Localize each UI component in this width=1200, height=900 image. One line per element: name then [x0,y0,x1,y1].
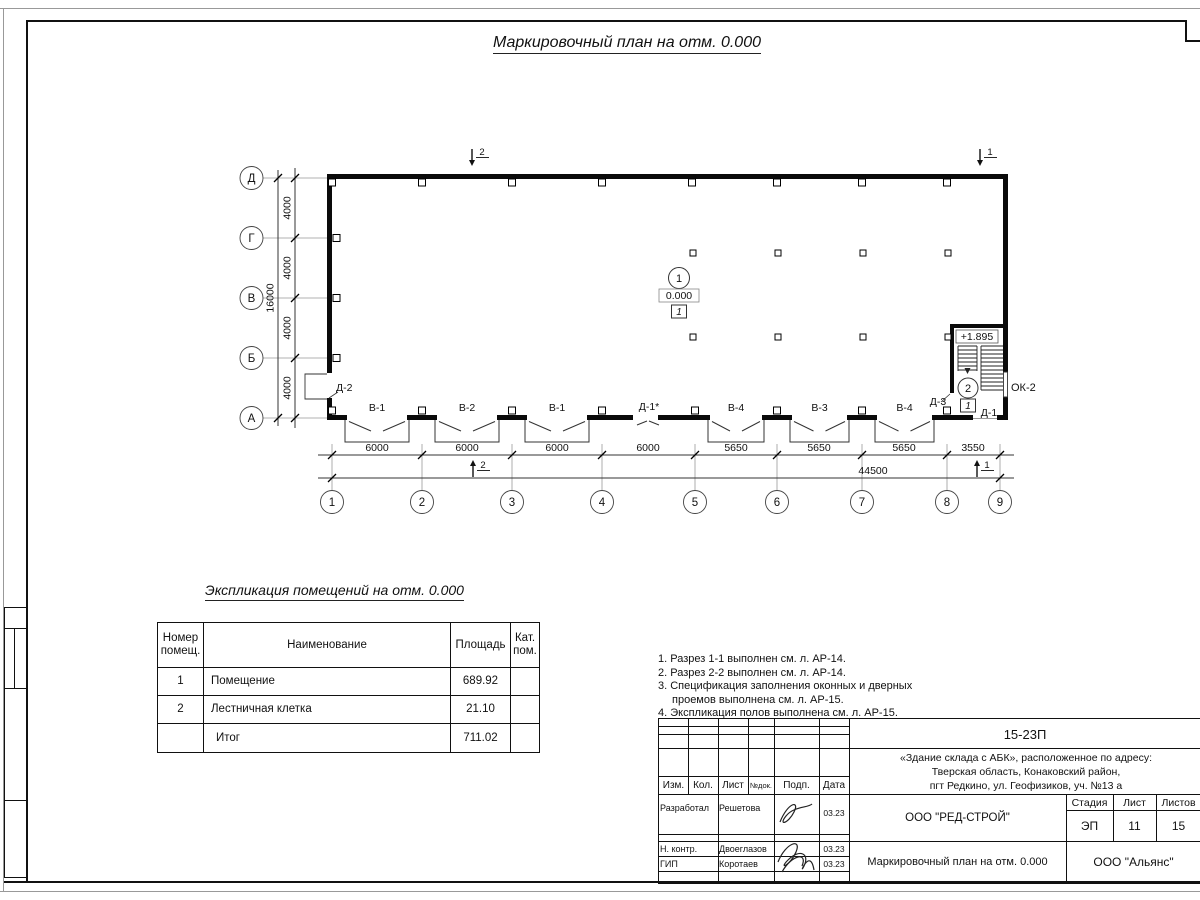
room1-number: 1 [676,273,682,285]
stair-elevation: +1.895 [961,331,994,343]
stair-direction-arrow [965,368,971,374]
dim-4000: 4000 [282,376,294,400]
tb-role-developer: Разработал [660,801,717,814]
signatures [774,794,819,883]
windows [345,420,934,442]
tb-col-izm: Изм. [659,778,688,793]
room1-floor-type: 1 [676,307,682,318]
dim-4000: 4000 [282,256,294,280]
note-item: 2. Разрез 2-2 выполнен см. л. АР-14. [658,667,936,681]
section-2-bottom: 2 [480,460,485,471]
dim-6000: 6000 [455,442,479,454]
drawing-sheet: Маркировочный план на отм. 0.000 6000 60… [0,0,1200,900]
room2-floor-type: 1 [965,401,971,412]
axis-8: 8 [944,497,950,509]
axis-6: 6 [774,497,780,509]
signature-ncontrol-gip [778,844,814,872]
tb-doc-title: Маркировочный план на отм. 0.000 [849,841,1066,883]
axis-b: Б [248,353,256,365]
schedule-title: Экспликация помещений на отм. 0.000 [205,582,464,598]
schedule-header-area: Площадь [451,623,511,668]
axis-9: 9 [997,497,1003,509]
tb-name-ncontrol: Двоеглазов [719,842,773,855]
tb-sheet-value: 11 [1113,811,1156,840]
schedule-cell-cat [511,668,539,696]
schedule-cell-num [158,724,204,752]
dimension-texts: 6000 6000 6000 6000 5650 5650 5650 3550 … [265,196,985,477]
tb-object-line2: Тверская область, Конаковский район, [932,765,1121,779]
schedule-header-cat: Кат. пом. [511,623,539,668]
tb-name-gip: Коротаев [719,857,773,870]
window-label: В-2 [459,402,476,414]
dimension-ticks [274,174,1004,482]
schedule-cell-num: 1 [158,668,204,696]
dim-4000: 4000 [282,196,294,220]
axis-g: Г [248,233,255,245]
axis-4: 4 [599,497,606,509]
axis-3: 3 [509,497,515,509]
dim-6000: 6000 [545,442,569,454]
tb-role-gip: ГИП [660,857,717,870]
dim-5650: 5650 [807,442,831,454]
schedule-title-text: Экспликация помещений на отм. 0.000 [205,582,464,601]
schedule-cell-total-area: 711.02 [451,724,511,752]
tb-col-ndok: №док. [748,778,774,793]
tb-object-line3: пгт Редкино, ул. Геофизиков, уч. №13 а [930,779,1123,793]
tb-role-ncontrol: Н. контр. [660,842,717,855]
axis-labels-left: Д Г В Б А [248,173,256,425]
axis-d: Д [248,173,256,185]
signature-developer [780,804,812,822]
window-label: В-1 [369,402,386,414]
door-label-d3: Д-3 [930,396,947,408]
tb-company: ООО "Альянс" [1066,841,1200,883]
schedule-cell-cat [511,724,539,752]
door-label-d1: Д-1 [981,407,998,419]
schedule-header-num: Номер помещ. [158,623,204,668]
dim-4000: 4000 [282,316,294,340]
window-label: В-4 [728,402,745,414]
tb-col-list: Лист [718,778,748,793]
axis-7: 7 [859,497,865,509]
axis-1: 1 [329,497,335,509]
dim-total-h: 44500 [858,465,887,477]
window-label-ok2: ОК-2 [1011,382,1036,394]
axis-5: 5 [692,497,698,509]
tb-col-data: Дата [819,778,849,793]
schedule-cell-name: Лестничная клетка [204,696,451,724]
room1-marker: 1 0.000 1 [659,268,699,319]
tb-org: ООО "РЕД-СТРОЙ" [849,794,1066,841]
door-label-d1star: Д-1* [639,401,660,413]
section-2-top: 2 [479,147,484,158]
tb-date-ncontrol: 03.23 [819,843,849,855]
dim-6000: 6000 [365,442,389,454]
tb-sheets-value: 15 [1156,811,1200,840]
tb-stage-value: ЭП [1066,811,1113,840]
schedule-cell-name: Помещение [204,668,451,696]
dim-total-v: 16000 [265,283,277,312]
window-label: В-3 [811,402,828,414]
dim-5650: 5650 [724,442,748,454]
door-label-d2: Д-2 [336,382,353,394]
room2-number: 2 [965,383,971,395]
room1-elevation: 0.000 [666,290,692,302]
tb-date-developer: 03.23 [819,807,849,819]
window-label: В-4 [896,402,913,414]
section-1-bottom: 1 [984,460,989,471]
schedule-cell-area: 21.10 [451,696,511,724]
notes-list: 1. Разрез 1-1 выполнен см. л. АР-14. 2. … [658,653,936,721]
columns [329,179,952,414]
dim-3550: 3550 [961,442,985,454]
window-label: В-1 [549,402,566,414]
tb-object-line1: «Здание склада с АБК», расположенное по … [900,751,1152,765]
tb-stage-label: Стадия [1066,796,1113,809]
tb-project-code: 15-23П [849,721,1200,747]
schedule-cell-num: 2 [158,696,204,724]
tb-col-kol: Кол. [688,778,718,793]
section-1-top: 1 [987,147,992,158]
tb-name-developer: Решетова [719,801,773,814]
tb-sheet-label: Лист [1113,796,1156,809]
tb-col-podp: Подп. [774,778,819,793]
schedule-header-name: Наименование [204,623,451,668]
room-schedule-table: Номер помещ. Наименование Площадь Кат. п… [157,622,540,753]
schedule-cell-cat [511,696,539,724]
schedule-cell-area: 689.92 [451,668,511,696]
dim-6000: 6000 [636,442,660,454]
schedule-cell-total-label: Итог [204,724,451,752]
dimension-lines [278,168,1014,478]
note-item: 3. Спецификация заполнения оконных и две… [658,680,936,707]
axis-a: А [248,413,256,425]
title-block: Изм. Кол. Лист №док. Подп. Дата Разработ… [658,718,1200,884]
tb-sheets-label: Листов [1156,796,1200,809]
dim-5650: 5650 [892,442,916,454]
axis-2: 2 [419,497,425,509]
tb-project-description: «Здание склада с АБК», расположенное по … [854,750,1198,793]
tb-date-gip: 03.23 [819,858,849,870]
note-item: 1. Разрез 1-1 выполнен см. л. АР-14. [658,653,936,667]
opening-labels: В-1 В-2 В-1 Д-1* В-4 В-3 В-4 Д-2 Д-3 Д-1… [336,382,1036,419]
axis-v: В [248,293,256,305]
